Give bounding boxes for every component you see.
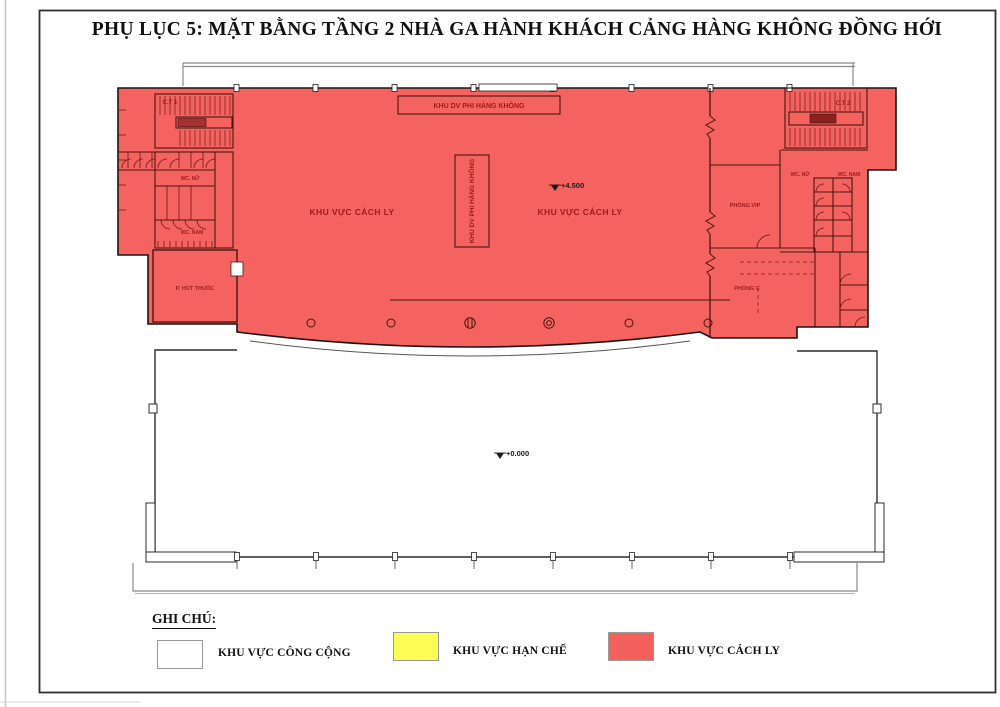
legend-swatch-isolation — [608, 632, 654, 661]
apron-outline — [133, 563, 857, 591]
smoking-room-door — [231, 262, 243, 276]
legend-label-restricted: KHU VỰC HẠN CHẾ — [453, 645, 567, 657]
room-c-label: PHÒNG C — [734, 284, 760, 292]
level-value-upper: +4.500 — [561, 181, 584, 190]
wc-female-left-label: WC. NỮ — [181, 175, 201, 182]
isolation-area-left-label: KHU VỰC CÁCH LY — [310, 207, 395, 217]
apron-column-stubs — [237, 561, 790, 569]
stair-flight-bar-left — [178, 119, 206, 127]
level-marker-ground: +0.000 — [494, 449, 529, 459]
isolation-area-right-label: KHU VỰC CÁCH LY — [538, 207, 623, 217]
vip-room-label: PHÒNG VIP — [730, 201, 761, 209]
public-hall-wall-piers — [146, 404, 884, 562]
stair-right-label: C.T 2 — [836, 101, 851, 107]
top-entrance-recess — [479, 84, 557, 91]
level-symbol — [496, 453, 504, 459]
legend-heading: GHI CHÚ: — [152, 611, 216, 629]
legend-swatch-restricted — [393, 632, 439, 661]
wc-male-left-label: WC. NAM — [181, 230, 204, 236]
stair-flight-bar-right — [810, 114, 836, 123]
wc-male-right-label: WC. NAM — [838, 172, 861, 178]
legend-swatch-public — [157, 640, 203, 669]
canopy-lines — [183, 63, 855, 86]
wc-female-right-label: WC. NỮ — [791, 171, 811, 178]
page-title: PHỤ LỤC 5: MẶT BẰNG TẦNG 2 NHÀ GA HÀNH K… — [40, 19, 994, 41]
scanned-floor-plan-page: +4.500 +0.000 C.T 1 C.T 2 KHU DV PHI HÀN… — [0, 0, 1000, 707]
non-aviation-service-top-label: KHU DV PHI HÀNG KHÔNG — [433, 101, 525, 110]
stair-left-label: C.T 1 — [163, 100, 178, 106]
legend-label-public: KHU VỰC CÔNG CỘNG — [218, 647, 351, 659]
floor-plan-canvas: +4.500 +0.000 C.T 1 C.T 2 KHU DV PHI HÀN… — [0, 0, 1000, 707]
smoking-room-label: P. HÚT THUỐC — [176, 285, 214, 292]
legend-label-isolation: KHU VỰC CÁCH LY — [668, 645, 780, 657]
non-aviation-service-mid-label: KHU DV PHI HÀNG KHÔNG — [467, 159, 476, 244]
level-value-ground: +0.000 — [506, 449, 529, 458]
isolation-area-shape — [118, 88, 896, 347]
